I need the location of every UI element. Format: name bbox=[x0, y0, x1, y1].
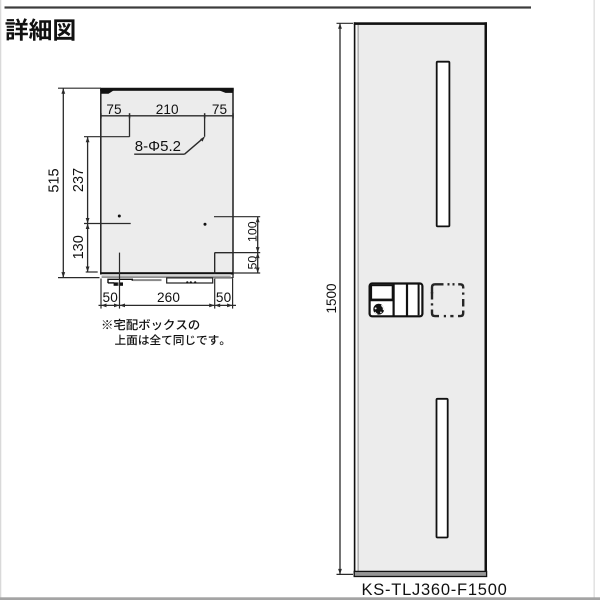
svg-text:75: 75 bbox=[106, 102, 121, 117]
svg-text:75: 75 bbox=[212, 102, 227, 117]
svg-text:130: 130 bbox=[71, 235, 87, 259]
svg-text:260: 260 bbox=[157, 290, 180, 305]
svg-text:KS-TLJ360-F1500: KS-TLJ360-F1500 bbox=[362, 581, 508, 599]
svg-text:210: 210 bbox=[156, 102, 179, 117]
svg-text:1500: 1500 bbox=[324, 283, 339, 313]
svg-text:50: 50 bbox=[216, 290, 232, 305]
svg-text:50: 50 bbox=[246, 256, 260, 270]
svg-text:515: 515 bbox=[47, 168, 63, 192]
svg-text:237: 237 bbox=[71, 168, 87, 192]
svg-text:50: 50 bbox=[103, 290, 119, 305]
svg-text:100: 100 bbox=[246, 221, 260, 242]
svg-text:8-Φ5.2: 8-Φ5.2 bbox=[135, 138, 181, 155]
